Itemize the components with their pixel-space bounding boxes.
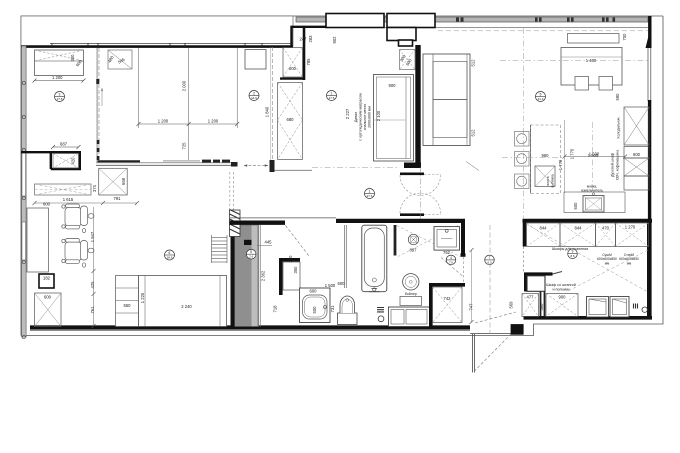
svg-text:вытяжка: вытяжка <box>551 174 555 187</box>
svg-text:725: 725 <box>182 142 187 150</box>
svg-text:1 500: 1 500 <box>325 283 336 288</box>
svg-text:27.6: 27.6 <box>329 96 335 100</box>
svg-text:425: 425 <box>90 281 95 289</box>
svg-text:762: 762 <box>443 250 451 255</box>
svg-text:бойлер: бойлер <box>405 292 417 296</box>
svg-text:374: 374 <box>92 184 97 192</box>
svg-text:Духовой шкаф: Духовой шкаф <box>611 153 615 177</box>
svg-text:844: 844 <box>575 226 583 231</box>
svg-text:247: 247 <box>300 37 308 42</box>
svg-text:6.0: 6.0 <box>487 260 491 264</box>
svg-text:9: 9 <box>572 250 574 254</box>
svg-text:8.6: 8.6 <box>570 254 574 258</box>
svg-text:2: 2 <box>253 92 255 96</box>
svg-text:350: 350 <box>288 255 293 263</box>
svg-text:590: 590 <box>615 93 620 101</box>
svg-text:785: 785 <box>306 58 311 66</box>
svg-text:18.6: 18.6 <box>167 256 173 260</box>
svg-text:5: 5 <box>540 93 542 97</box>
svg-text:600: 600 <box>44 295 52 300</box>
svg-text:2 362: 2 362 <box>261 270 266 281</box>
svg-text:283: 283 <box>308 35 313 43</box>
svg-text:900: 900 <box>389 83 397 88</box>
svg-text:спальное место: спальное место <box>363 104 367 131</box>
svg-text:и полками: и полками <box>552 288 569 292</box>
svg-text:470: 470 <box>602 226 610 231</box>
svg-text:1 225: 1 225 <box>140 292 145 303</box>
svg-text:300: 300 <box>70 54 75 62</box>
svg-text:2 227: 2 227 <box>345 108 350 119</box>
svg-text:1 200: 1 200 <box>208 119 219 124</box>
svg-text:600: 600 <box>310 289 318 294</box>
svg-text:2 100: 2 100 <box>376 110 381 121</box>
svg-text:680: 680 <box>287 117 295 122</box>
svg-text:2 000: 2 000 <box>182 80 187 91</box>
svg-text:742: 742 <box>444 296 452 301</box>
svg-text:700: 700 <box>622 33 627 41</box>
svg-text:мм: мм <box>605 261 610 265</box>
svg-text:477: 477 <box>527 294 535 299</box>
svg-text:мм: мм <box>627 261 632 265</box>
svg-text:718: 718 <box>273 305 278 313</box>
svg-text:1 770: 1 770 <box>558 159 563 170</box>
svg-text:2 240: 2 240 <box>181 304 192 309</box>
svg-text:600: 600 <box>338 281 346 286</box>
svg-text:300: 300 <box>539 303 544 311</box>
svg-text:844: 844 <box>540 226 548 231</box>
svg-text:1 770: 1 770 <box>570 148 575 159</box>
svg-text:600: 600 <box>573 202 578 210</box>
svg-text:плита: плита <box>546 176 550 185</box>
svg-text:902: 902 <box>332 36 337 44</box>
svg-text:791: 791 <box>114 196 122 201</box>
svg-text:2.6: 2.6 <box>249 255 253 259</box>
svg-text:СВЧ, кофемашина: СВЧ, кофемашина <box>616 150 620 180</box>
svg-text:687: 687 <box>60 142 68 147</box>
svg-text:1 270: 1 270 <box>625 225 636 230</box>
svg-text:731: 731 <box>330 305 335 313</box>
svg-text:500: 500 <box>312 306 317 314</box>
svg-text:14.6: 14.6 <box>251 96 257 100</box>
svg-text:1: 1 <box>331 92 333 96</box>
svg-text:747: 747 <box>469 303 474 311</box>
svg-text:1 947: 1 947 <box>90 231 95 242</box>
svg-text:600: 600 <box>289 66 297 71</box>
svg-text:27.6: 27.6 <box>367 194 373 198</box>
svg-text:668: 668 <box>121 177 126 185</box>
svg-text:41.3: 41.3 <box>538 97 544 101</box>
svg-text:512: 512 <box>471 129 476 137</box>
svg-text:445: 445 <box>265 240 273 245</box>
svg-text:420: 420 <box>71 157 76 165</box>
svg-text:17.8: 17.8 <box>57 97 63 101</box>
svg-text:897: 897 <box>410 248 418 253</box>
svg-text:550: 550 <box>124 303 132 308</box>
svg-text:1 615: 1 615 <box>63 197 74 202</box>
svg-text:1: 1 <box>369 190 371 194</box>
svg-text:1 200: 1 200 <box>158 119 169 124</box>
svg-text:600: 600 <box>43 202 51 207</box>
svg-text:350: 350 <box>293 266 298 274</box>
svg-text:8: 8 <box>250 250 252 254</box>
svg-text:Холодильник: Холодильник <box>617 117 621 139</box>
svg-text:182: 182 <box>43 276 51 281</box>
svg-text:569: 569 <box>509 301 514 309</box>
svg-text:900: 900 <box>559 294 567 299</box>
svg-text:с ортопедическим матрасом: с ортопедическим матрасом <box>359 93 363 141</box>
svg-text:3: 3 <box>59 93 61 97</box>
svg-text:1 840: 1 840 <box>265 106 270 117</box>
svg-text:7: 7 <box>489 256 491 260</box>
svg-text:2000х600 мм: 2000х600 мм <box>368 106 372 128</box>
svg-text:Шкаф со штангой: Шкаф со штангой <box>546 283 575 287</box>
svg-text:4: 4 <box>450 256 452 260</box>
svg-text:1 500: 1 500 <box>589 152 600 157</box>
svg-text:1 200: 1 200 <box>52 75 63 80</box>
svg-text:7.6: 7.6 <box>449 260 453 264</box>
svg-text:512: 512 <box>471 59 476 67</box>
svg-text:измельчитель: измельчитель <box>581 188 603 192</box>
svg-text:Диван: Диван <box>354 112 358 122</box>
svg-text:6: 6 <box>169 251 171 255</box>
svg-text:600: 600 <box>633 152 641 157</box>
svg-text:761: 761 <box>90 306 95 314</box>
